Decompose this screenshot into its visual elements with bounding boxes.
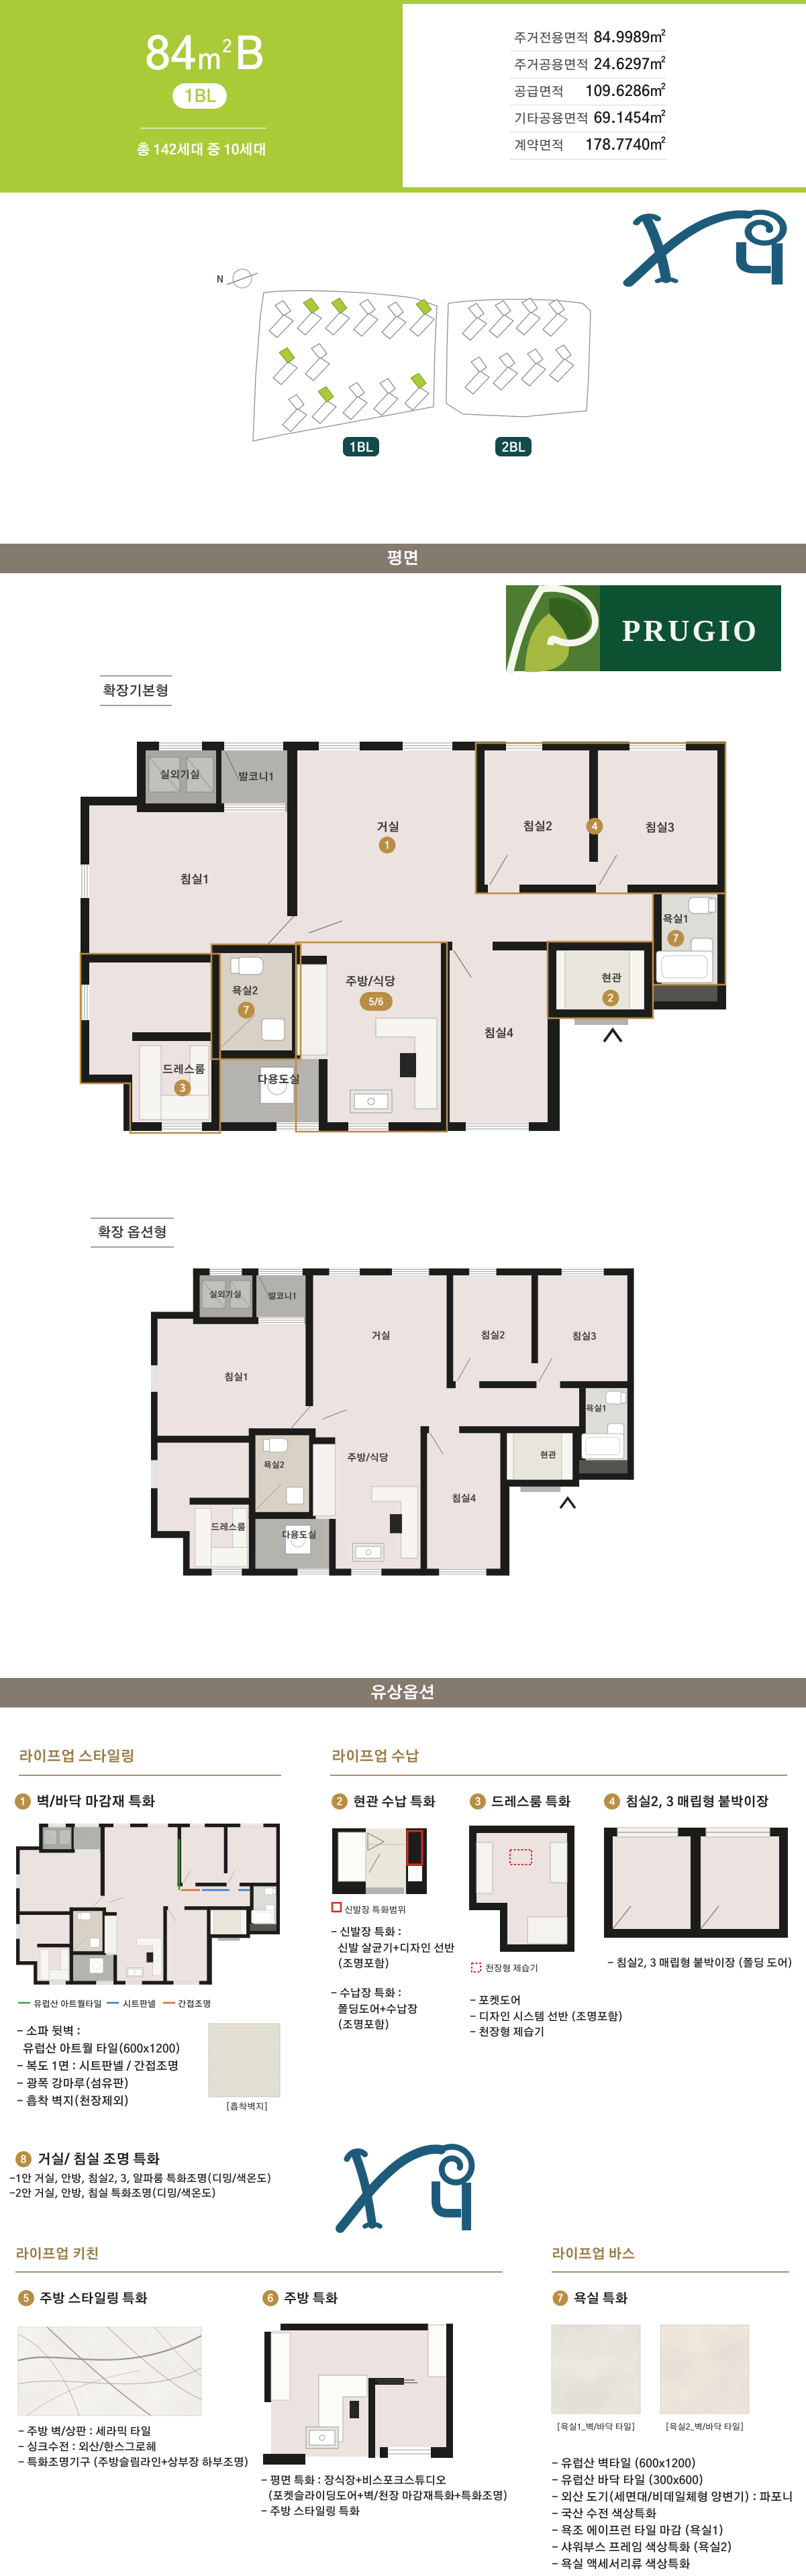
svg-text:PRUGIO: PRUGIO: [622, 614, 759, 648]
